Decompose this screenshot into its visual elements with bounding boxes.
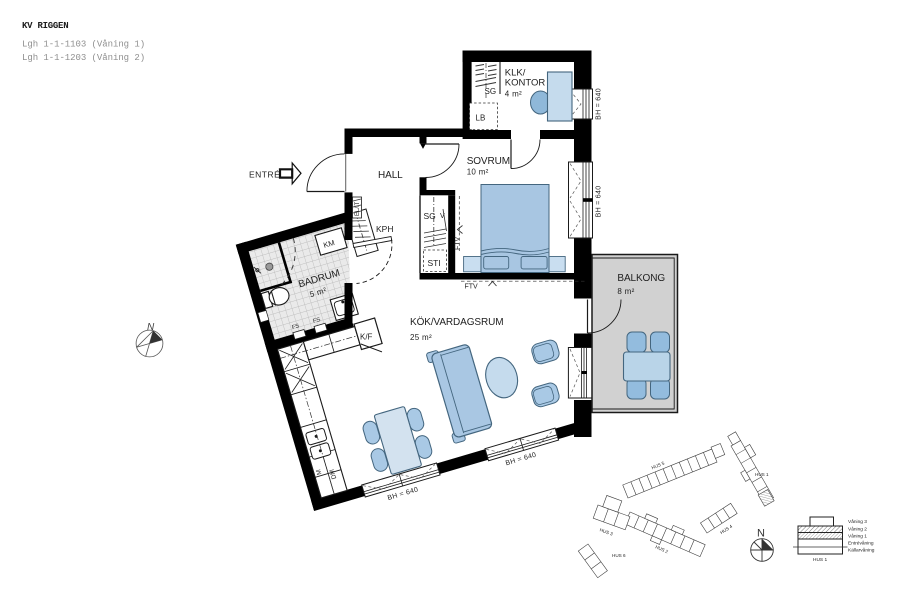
svg-text:KPH: KPH — [376, 224, 393, 234]
svg-text:Våning 2: Våning 2 — [848, 526, 867, 533]
svg-text:STI: STI — [428, 258, 441, 268]
svg-text:BH = 640: BH = 640 — [596, 88, 603, 120]
svg-text:HUS 1: HUS 1 — [813, 557, 827, 563]
svg-text:KÖK/VARDAGSRUM: KÖK/VARDAGSRUM — [410, 316, 503, 328]
svg-text:KONTOR: KONTOR — [505, 78, 546, 89]
svg-text:25 m²: 25 m² — [410, 333, 432, 342]
svg-text:FTV: FTV — [455, 236, 462, 250]
svg-text:N: N — [757, 528, 765, 540]
svg-text:Lgh 1-1-1103 (Våning 1): Lgh 1-1-1103 (Våning 1) — [22, 40, 145, 50]
svg-text:Entrévåning: Entrévåning — [848, 540, 874, 547]
svg-text:HUS 1: HUS 1 — [755, 472, 769, 477]
svg-text:Våning 1: Våning 1 — [848, 533, 867, 540]
svg-text:SG: SG — [485, 87, 497, 96]
svg-text:8 m²: 8 m² — [617, 287, 634, 296]
svg-text:4 m²: 4 m² — [505, 90, 522, 99]
svg-text:FTV: FTV — [465, 284, 479, 291]
svg-text:KV RIGGEN: KV RIGGEN — [22, 21, 68, 31]
svg-text:BALKONG: BALKONG — [617, 273, 665, 284]
svg-text:Lgh 1-1-1203 (Våning 2): Lgh 1-1-1203 (Våning 2) — [22, 53, 145, 63]
svg-text:BH = 640: BH = 640 — [596, 186, 603, 218]
svg-text:10 m²: 10 m² — [467, 168, 489, 177]
svg-text:EL/IT: EL/IT — [355, 201, 361, 216]
svg-text:LB: LB — [476, 114, 486, 123]
svg-text:K/F: K/F — [360, 333, 373, 342]
svg-text:HALL: HALL — [378, 170, 403, 181]
svg-text:V: V — [440, 213, 445, 220]
svg-text:N: N — [147, 322, 155, 333]
svg-text:SG: SG — [424, 211, 436, 221]
svg-text:SOVRUM: SOVRUM — [467, 156, 510, 167]
svg-text:HUS 6: HUS 6 — [612, 553, 626, 558]
svg-text:Källarvåning: Källarvåning — [848, 547, 875, 554]
svg-text:Våning 3: Våning 3 — [848, 518, 867, 525]
svg-text:ENTRÉ: ENTRÉ — [249, 170, 280, 180]
